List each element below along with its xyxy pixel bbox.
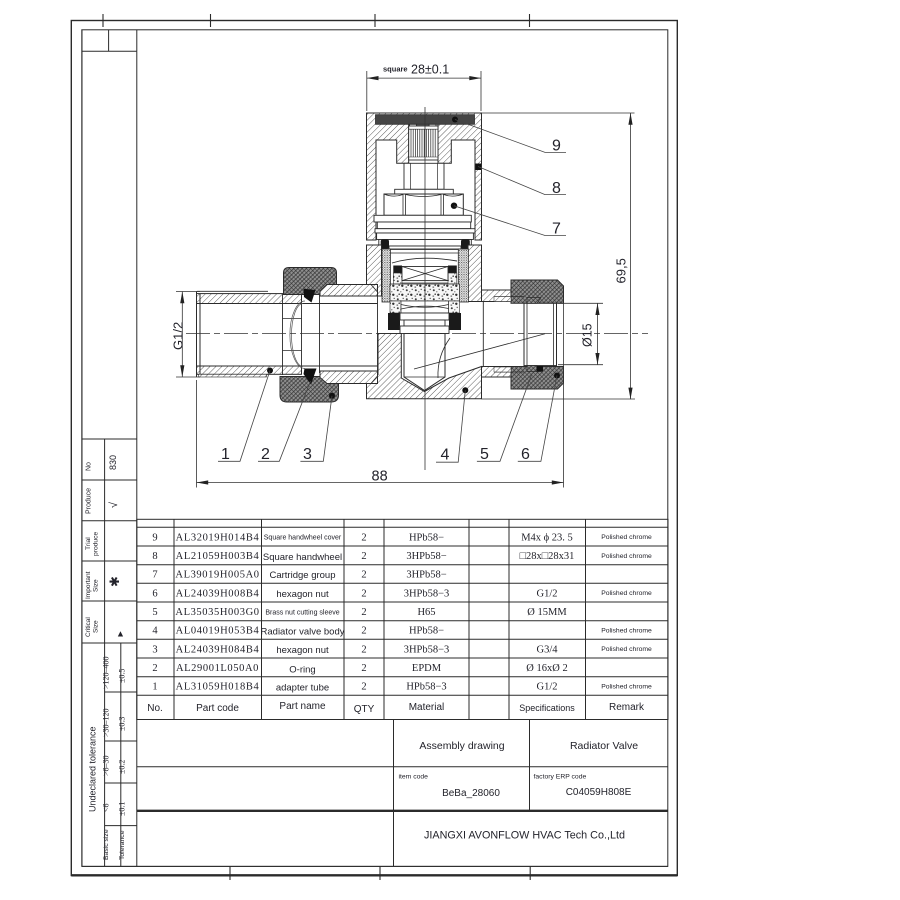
svg-text:2: 2 (361, 533, 366, 544)
svg-text:4: 4 (152, 626, 158, 637)
svg-text:AL21059H003B4: AL21059H003B4 (176, 551, 260, 562)
svg-text:7: 7 (152, 570, 157, 581)
svg-text:M4x ϕ 23. 5: M4x ϕ 23. 5 (521, 533, 573, 544)
svg-text:2: 2 (361, 644, 366, 655)
svg-text:3HPb58−: 3HPb58− (406, 551, 446, 562)
svg-text:No: No (86, 462, 93, 471)
svg-text:Radiator valve body: Radiator valve body (261, 627, 345, 638)
svg-text:Material: Material (409, 702, 445, 713)
svg-text:G3/4: G3/4 (537, 644, 559, 655)
svg-text:6: 6 (152, 588, 157, 599)
svg-text:AL29001L050A0: AL29001L050A0 (176, 663, 259, 674)
svg-text:9: 9 (552, 138, 561, 155)
svg-text:hexagon nut: hexagon nut (276, 589, 329, 600)
svg-text:2: 2 (361, 682, 366, 693)
svg-text:>6–30: >6–30 (102, 755, 111, 776)
svg-text:±0.2: ±0.2 (118, 760, 127, 774)
svg-text:8: 8 (152, 551, 157, 562)
svg-text:O-ring: O-ring (289, 665, 315, 676)
svg-text:Part code: Part code (196, 703, 239, 714)
svg-text:1: 1 (221, 446, 230, 463)
svg-text:3HPb58−: 3HPb58− (406, 570, 446, 581)
svg-text:Size: Size (93, 620, 100, 633)
svg-text:C04059H808E: C04059H808E (566, 787, 632, 798)
svg-text:✱: ✱ (107, 576, 122, 587)
svg-text:EPDM: EPDM (412, 663, 442, 674)
svg-text:G1/2: G1/2 (537, 588, 558, 599)
svg-text:1: 1 (152, 682, 157, 693)
svg-text:830: 830 (108, 455, 118, 470)
svg-text:Polished chrome: Polished chrome (601, 684, 652, 691)
svg-text:4: 4 (441, 447, 450, 464)
svg-text:5: 5 (480, 446, 489, 463)
svg-text:88: 88 (372, 469, 388, 485)
svg-text:AL35035H003G0: AL35035H003G0 (175, 607, 259, 618)
svg-text:Important: Important (85, 571, 92, 599)
svg-text:9: 9 (152, 533, 157, 544)
svg-text:▲: ▲ (116, 629, 125, 639)
svg-text:HPb58−: HPb58− (409, 533, 444, 544)
svg-text:factory ERP code: factory ERP code (534, 774, 587, 781)
svg-text:±0.3: ±0.3 (118, 717, 127, 731)
svg-text:±0.1: ±0.1 (118, 802, 127, 816)
svg-text:Size: Size (93, 579, 100, 592)
svg-text:Radiator Valve: Radiator Valve (570, 740, 638, 752)
svg-text:Critical: Critical (85, 617, 92, 637)
svg-text:AL32019H014B4: AL32019H014B4 (176, 533, 260, 544)
svg-text:2: 2 (152, 663, 157, 674)
svg-text:2: 2 (361, 663, 366, 674)
svg-text:Polished chrome: Polished chrome (601, 534, 652, 541)
svg-text:Square handwheel: Square handwheel (263, 552, 342, 563)
svg-text:G1/2: G1/2 (537, 682, 558, 693)
svg-text:Square handwheel cover: Square handwheel cover (264, 535, 342, 542)
svg-text:Cartridge group: Cartridge group (269, 570, 335, 581)
svg-text:AL24039H084B4: AL24039H084B4 (176, 644, 260, 655)
svg-text:<6: <6 (102, 803, 111, 812)
svg-text:>30–120: >30–120 (102, 708, 111, 737)
svg-text:2: 2 (361, 570, 366, 581)
svg-text:produce: produce (93, 532, 100, 556)
svg-text:2: 2 (361, 588, 366, 599)
svg-text:Basic size: Basic size (103, 829, 110, 860)
svg-text:Part name: Part name (279, 701, 326, 712)
svg-text:Brass nut cutting sleeve: Brass nut cutting sleeve (265, 610, 339, 617)
svg-text:square: square (383, 65, 408, 74)
svg-text:Specifications: Specifications (519, 703, 575, 713)
svg-text:Polished chrome: Polished chrome (601, 553, 652, 560)
svg-text:Polished chrome: Polished chrome (601, 628, 652, 635)
svg-text:H65: H65 (417, 607, 435, 618)
svg-text:2: 2 (361, 607, 366, 618)
svg-text:HPb58−3: HPb58−3 (406, 682, 446, 693)
svg-text:G1/2: G1/2 (171, 322, 186, 350)
svg-text:AL24039H008B4: AL24039H008B4 (176, 588, 260, 599)
svg-text:2: 2 (361, 626, 366, 637)
svg-text:69,5: 69,5 (614, 258, 629, 283)
svg-text:Ø 15MM: Ø 15MM (527, 607, 567, 618)
svg-text:√: √ (108, 501, 120, 508)
svg-text:Produce: Produce (86, 488, 93, 514)
svg-text:Remark: Remark (609, 702, 645, 713)
svg-text:AL39019H005A0: AL39019H005A0 (175, 570, 259, 581)
svg-text:Ø15: Ø15 (581, 323, 595, 347)
svg-text:8: 8 (552, 180, 561, 197)
svg-text:QTY: QTY (354, 704, 375, 715)
svg-text:Assembly drawing: Assembly drawing (419, 740, 504, 752)
svg-text:adapter tube: adapter tube (276, 683, 329, 694)
svg-text:Polished chrome: Polished chrome (601, 646, 652, 653)
svg-text:2: 2 (361, 551, 366, 562)
svg-text:2: 2 (261, 446, 270, 463)
svg-text:JIANGXI AVONFLOW HVAC Tech Co.: JIANGXI AVONFLOW HVAC Tech Co.,Ltd (424, 830, 625, 842)
svg-text:AL04019H053B4: AL04019H053B4 (176, 626, 260, 637)
svg-text:3: 3 (303, 446, 312, 463)
svg-text:Undeclared tolerance: Undeclared tolerance (88, 726, 98, 812)
svg-text:3HPb58−3: 3HPb58−3 (404, 644, 450, 655)
svg-text:6: 6 (521, 446, 530, 463)
svg-text:Tolerance: Tolerance (119, 830, 126, 860)
svg-text:Polished chrome: Polished chrome (601, 590, 652, 597)
svg-text:3HPb58−3: 3HPb58−3 (404, 588, 450, 599)
svg-text:±0.5: ±0.5 (118, 669, 127, 683)
svg-text:item code: item code (399, 774, 429, 781)
svg-text:>120–400: >120–400 (102, 656, 111, 689)
svg-text:□28x□28x31: □28x□28x31 (520, 551, 575, 562)
svg-text:HPb58−: HPb58− (409, 626, 444, 637)
svg-text:7: 7 (552, 221, 561, 238)
svg-text:hexagon nut: hexagon nut (276, 645, 329, 656)
svg-text:AL31059H018B4: AL31059H018B4 (176, 682, 260, 693)
svg-text:3: 3 (152, 644, 157, 655)
svg-text:5: 5 (152, 607, 157, 618)
svg-text:No.: No. (147, 703, 163, 714)
svg-text:BeBa_28060: BeBa_28060 (442, 788, 500, 799)
svg-text:Ø 16xØ 2: Ø 16xØ 2 (526, 663, 567, 674)
svg-text:Trial: Trial (85, 537, 92, 550)
svg-text:28±0.1: 28±0.1 (411, 63, 449, 77)
